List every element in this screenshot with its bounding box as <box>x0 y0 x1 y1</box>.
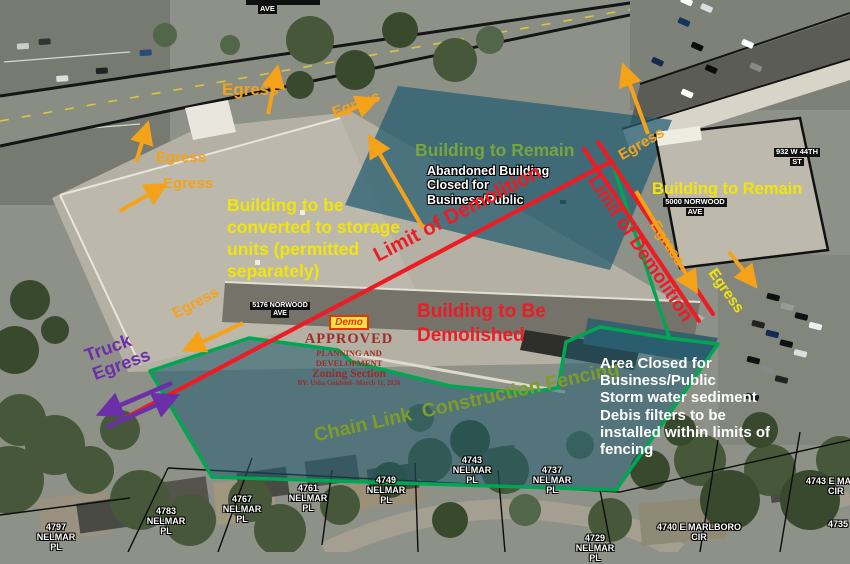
egress-label-left-2: Egress <box>163 176 213 193</box>
parcel-4737-nelmar: 4737 NELMARPL <box>522 466 582 496</box>
parcel-4729-nelmar: 4729 NELMARPL <box>565 534 625 564</box>
area-closed-line5: installed within limits of <box>600 424 770 441</box>
parcel-4740-e-marlboro: 4740 E MARLBOROCIR <box>655 523 743 543</box>
area-closed-line2: Business/Public <box>600 372 770 389</box>
address-5176-line2: AVE <box>271 310 289 318</box>
area-closed-line4: Debis filters to be <box>600 407 770 424</box>
building-converted-note: Building to be converted to storage unit… <box>227 194 400 282</box>
ave-chip: AVE <box>258 5 277 14</box>
demolition-site-plan: { "labels": { "egress": "Egress", "truck… <box>0 0 850 552</box>
parcel-4749-nelmar: 4749 NELMARPL <box>356 476 416 506</box>
converted-line1: Building to be <box>227 194 400 216</box>
parcel-4767-nelmar: 4767 NELMARPL <box>212 495 272 525</box>
converted-line4: separately) <box>227 260 400 282</box>
parcel-4735: 4735 <box>828 520 850 530</box>
demolished-line2: Demolished <box>417 324 546 348</box>
egress-label-left-1: Egress <box>156 150 206 167</box>
area-closed-line1: Area Closed for <box>600 355 770 372</box>
parcel-4783-nelmar: 4783 NELMARPL <box>136 507 196 537</box>
building-to-be-demolished-label: Building to Be Demolished <box>417 300 546 348</box>
address-5000-line1: 5000 NORWOOD <box>663 198 726 207</box>
address-5000-norwood: 5000 NORWOOD AVE <box>662 197 728 216</box>
area-closed-line3: Storm water sediment <box>600 389 770 406</box>
address-5000-line2: AVE <box>686 208 705 217</box>
building-to-remain-right-label: Building to Remain <box>652 180 802 198</box>
approval-stamp: Demo APPROVED PLANNING AND DEVELOPMENT Z… <box>283 312 415 387</box>
demo-stamp-chip: Demo <box>329 315 369 330</box>
stamp-approved: APPROVED <box>283 331 415 348</box>
parcel-4797-nelmar: 4797 NELMARPL <box>26 523 86 553</box>
stamp-section: Zoning Section <box>283 368 415 380</box>
parcel-4743-nelmar: 4743 NELMARPL <box>442 456 502 486</box>
stamp-by-line: BY: Usha Gokhool- March 11, 2026 <box>283 380 415 387</box>
parcel-4761-nelmar: 4761 NELMARPL <box>278 484 338 514</box>
parcel-4743-e-marlboro: 4743 E MARCIR <box>806 477 850 497</box>
building-to-remain-center-label: Building to Remain <box>415 141 574 160</box>
area-closed-note: Area Closed for Business/Public Storm wa… <box>600 355 770 458</box>
demolished-line1: Building to Be <box>417 300 546 324</box>
address-932-line1: 932 W 44TH <box>774 148 820 157</box>
egress-label-top-center: Egress <box>222 81 279 100</box>
stamp-department: PLANNING AND DEVELOPMENT <box>283 348 415 368</box>
converted-line2: converted to storage <box>227 216 400 238</box>
area-closed-line6: fencing <box>600 441 770 458</box>
address-932-line2: ST <box>790 158 804 167</box>
address-5176-norwood: 5176 NORWOOD AVE <box>245 302 315 318</box>
address-5176-line1: 5176 NORWOOD <box>250 302 310 310</box>
street-label-ave: AVE <box>258 4 277 14</box>
address-932-w44th: 932 W 44TH ST <box>768 147 826 166</box>
